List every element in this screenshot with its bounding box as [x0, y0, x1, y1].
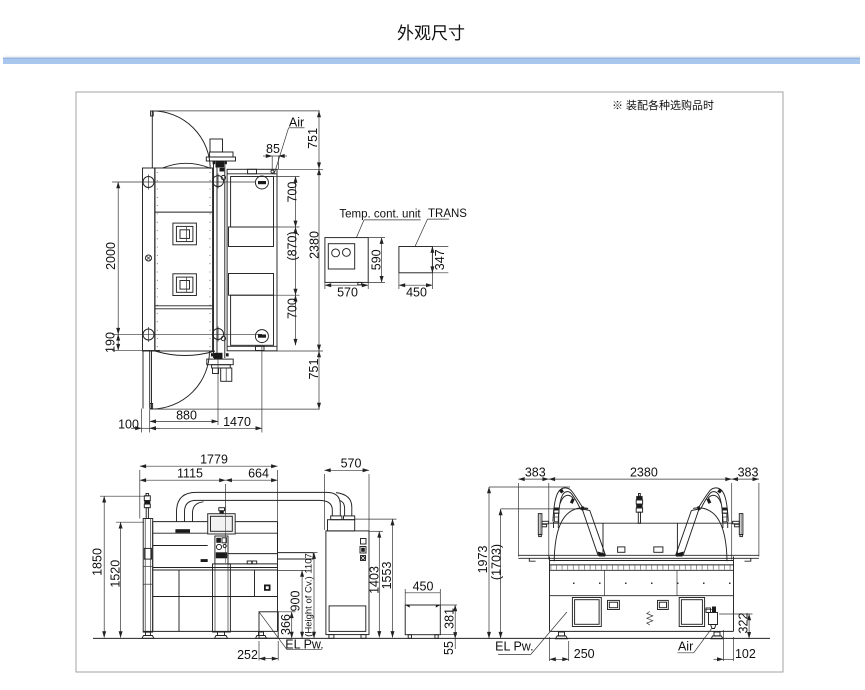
svg-text:250: 250	[574, 647, 595, 661]
svg-text:Air: Air	[678, 640, 693, 654]
svg-text:570: 570	[337, 286, 358, 300]
svg-text:100: 100	[118, 418, 139, 432]
svg-text:(870): (870)	[286, 231, 300, 260]
svg-text:1520: 1520	[109, 560, 123, 588]
svg-text:102: 102	[735, 647, 756, 661]
svg-text:1470: 1470	[223, 415, 251, 429]
svg-text:2380: 2380	[630, 466, 658, 480]
svg-text:(Height of Cv.) 1107: (Height of Cv.) 1107	[303, 553, 314, 637]
svg-text:450: 450	[406, 286, 427, 300]
svg-text:2000: 2000	[104, 242, 118, 270]
svg-text:383: 383	[738, 466, 759, 480]
svg-text:EL Pw.: EL Pw.	[495, 640, 533, 654]
svg-text:1973: 1973	[476, 546, 490, 574]
svg-text:700: 700	[286, 298, 300, 319]
svg-text:664: 664	[248, 467, 269, 481]
svg-text:外观尺寸: 外观尺寸	[397, 24, 465, 43]
svg-text:570: 570	[341, 457, 362, 471]
svg-text:590: 590	[369, 249, 383, 270]
svg-text:(1703): (1703)	[490, 544, 504, 580]
svg-text:1115: 1115	[177, 467, 203, 481]
svg-text:700: 700	[286, 182, 300, 203]
svg-text:2380: 2380	[308, 231, 322, 259]
svg-text:55: 55	[442, 641, 456, 655]
svg-text:751: 751	[307, 359, 321, 380]
svg-text:381: 381	[442, 608, 456, 629]
svg-text:Temp. cont. unit: Temp. cont. unit	[339, 209, 421, 221]
svg-text:347: 347	[433, 249, 447, 270]
svg-text:1850: 1850	[91, 548, 105, 576]
svg-text:322: 322	[737, 613, 751, 634]
svg-text:TRANS: TRANS	[428, 208, 467, 220]
svg-text:252: 252	[237, 648, 258, 662]
svg-text:1779: 1779	[200, 453, 228, 467]
svg-text:1553: 1553	[380, 562, 394, 590]
svg-text:383: 383	[525, 466, 546, 480]
svg-text:85: 85	[266, 142, 280, 156]
svg-text:190: 190	[104, 332, 118, 353]
svg-text:450: 450	[413, 579, 434, 593]
svg-text:751: 751	[306, 128, 320, 149]
svg-text:900: 900	[289, 591, 303, 612]
svg-text:880: 880	[176, 409, 197, 423]
svg-text:366: 366	[279, 614, 293, 635]
svg-text:※ 装配各种选购品时: ※ 装配各种选购品时	[612, 98, 714, 112]
